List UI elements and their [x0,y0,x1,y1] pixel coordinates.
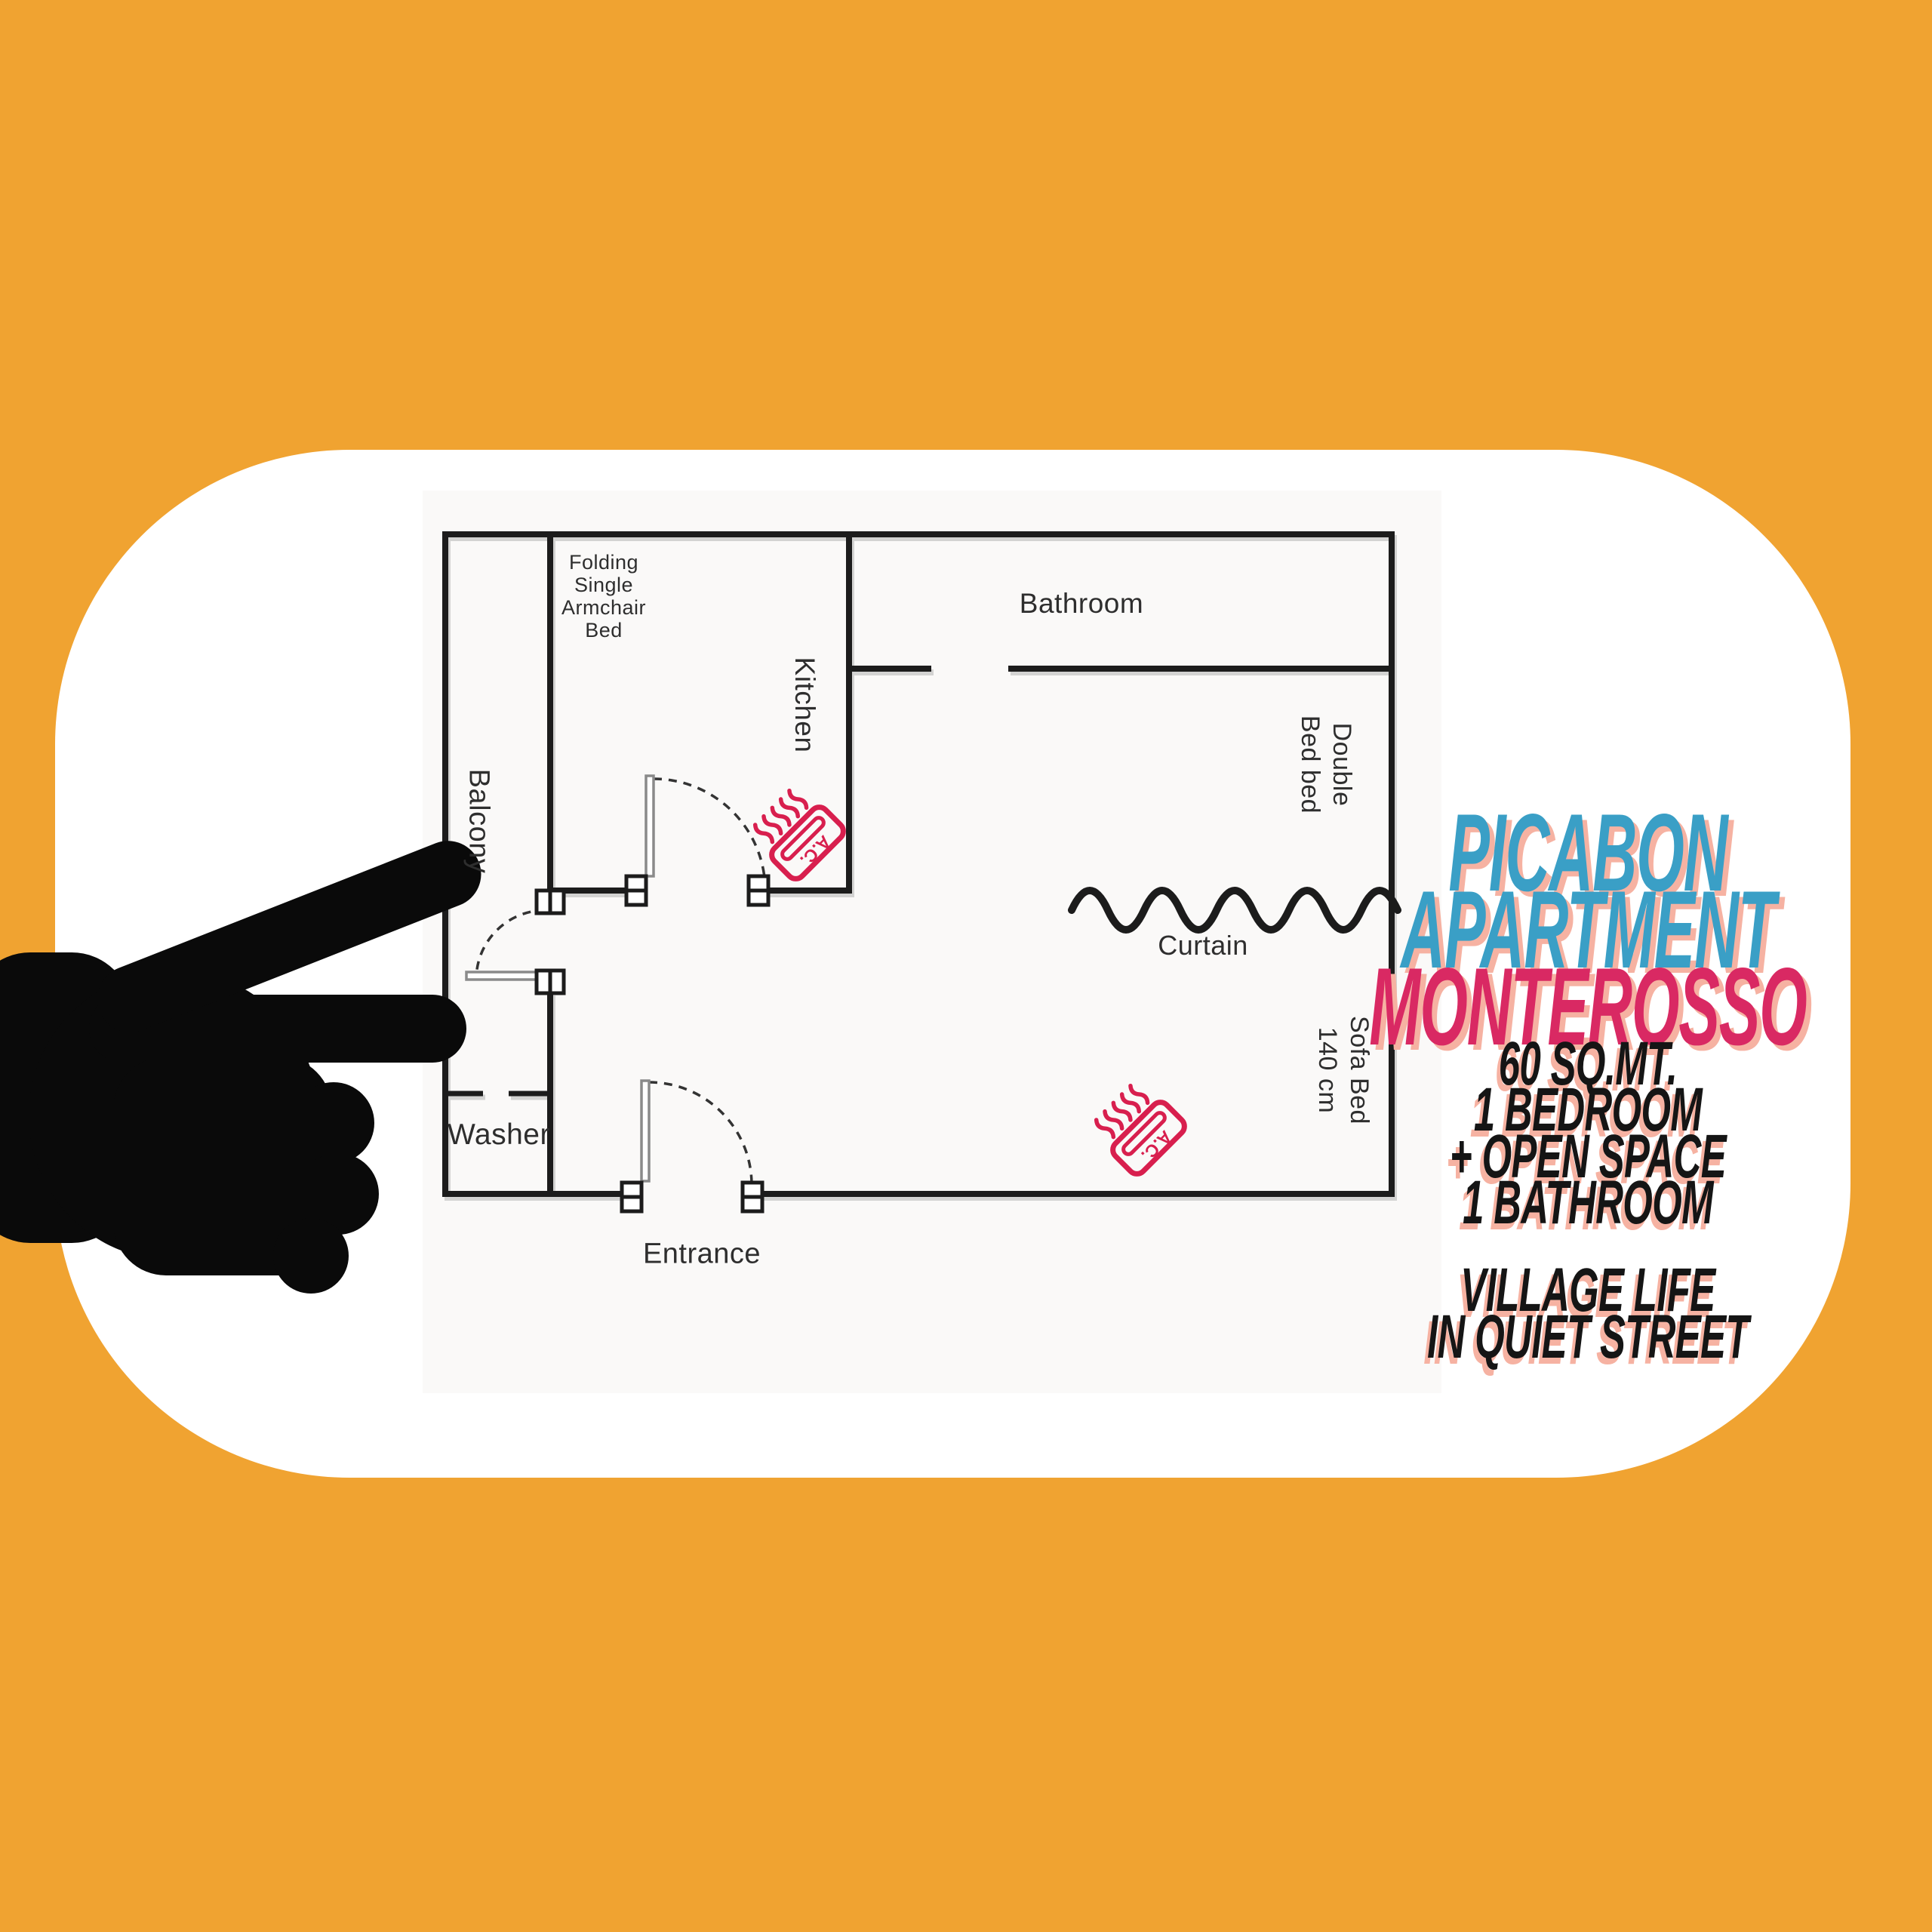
room-label-double-bed: Double Bed bed [1294,715,1358,814]
poster-canvas: A.C. [0,0,1932,1932]
double-bed-line: Double [1326,715,1358,814]
sofa-bed-line: 140 cm [1312,1016,1343,1124]
folding-bed-line: Bed [561,619,646,641]
folding-bed-line: Armchair [561,596,646,619]
room-label-entrance: Entrance [643,1238,761,1271]
pointing-hand-icon [0,831,491,1294]
room-label-bathroom: Bathroom [1020,588,1143,620]
balcony-door-leaf [466,972,542,980]
room-label-balcony: Balcony [463,769,495,874]
feature-bathroom: 1 BATHROOM [1463,1168,1713,1238]
room-label-folding-bed: Folding Single Armchair Bed [561,551,646,641]
hand-knuckle-1 [293,1082,374,1164]
room-label-curtain: Curtain [1158,930,1248,961]
tagline-line-2: IN QUIET STREET [1427,1302,1749,1373]
room-label-sofa-bed: Sofa Bed 140 cm [1312,1016,1375,1124]
hand-knuckle-3 [273,1218,349,1294]
entrance-door-leaf [641,1081,649,1181]
room-label-kitchen: Kitchen [789,657,820,753]
folding-bed-line: Folding [561,551,646,574]
folding-bed-line: Single [561,574,646,596]
kitchen-door-leaf [646,776,654,876]
double-bed-line: Bed bed [1294,715,1326,814]
room-label-washer: Washer [448,1118,550,1152]
